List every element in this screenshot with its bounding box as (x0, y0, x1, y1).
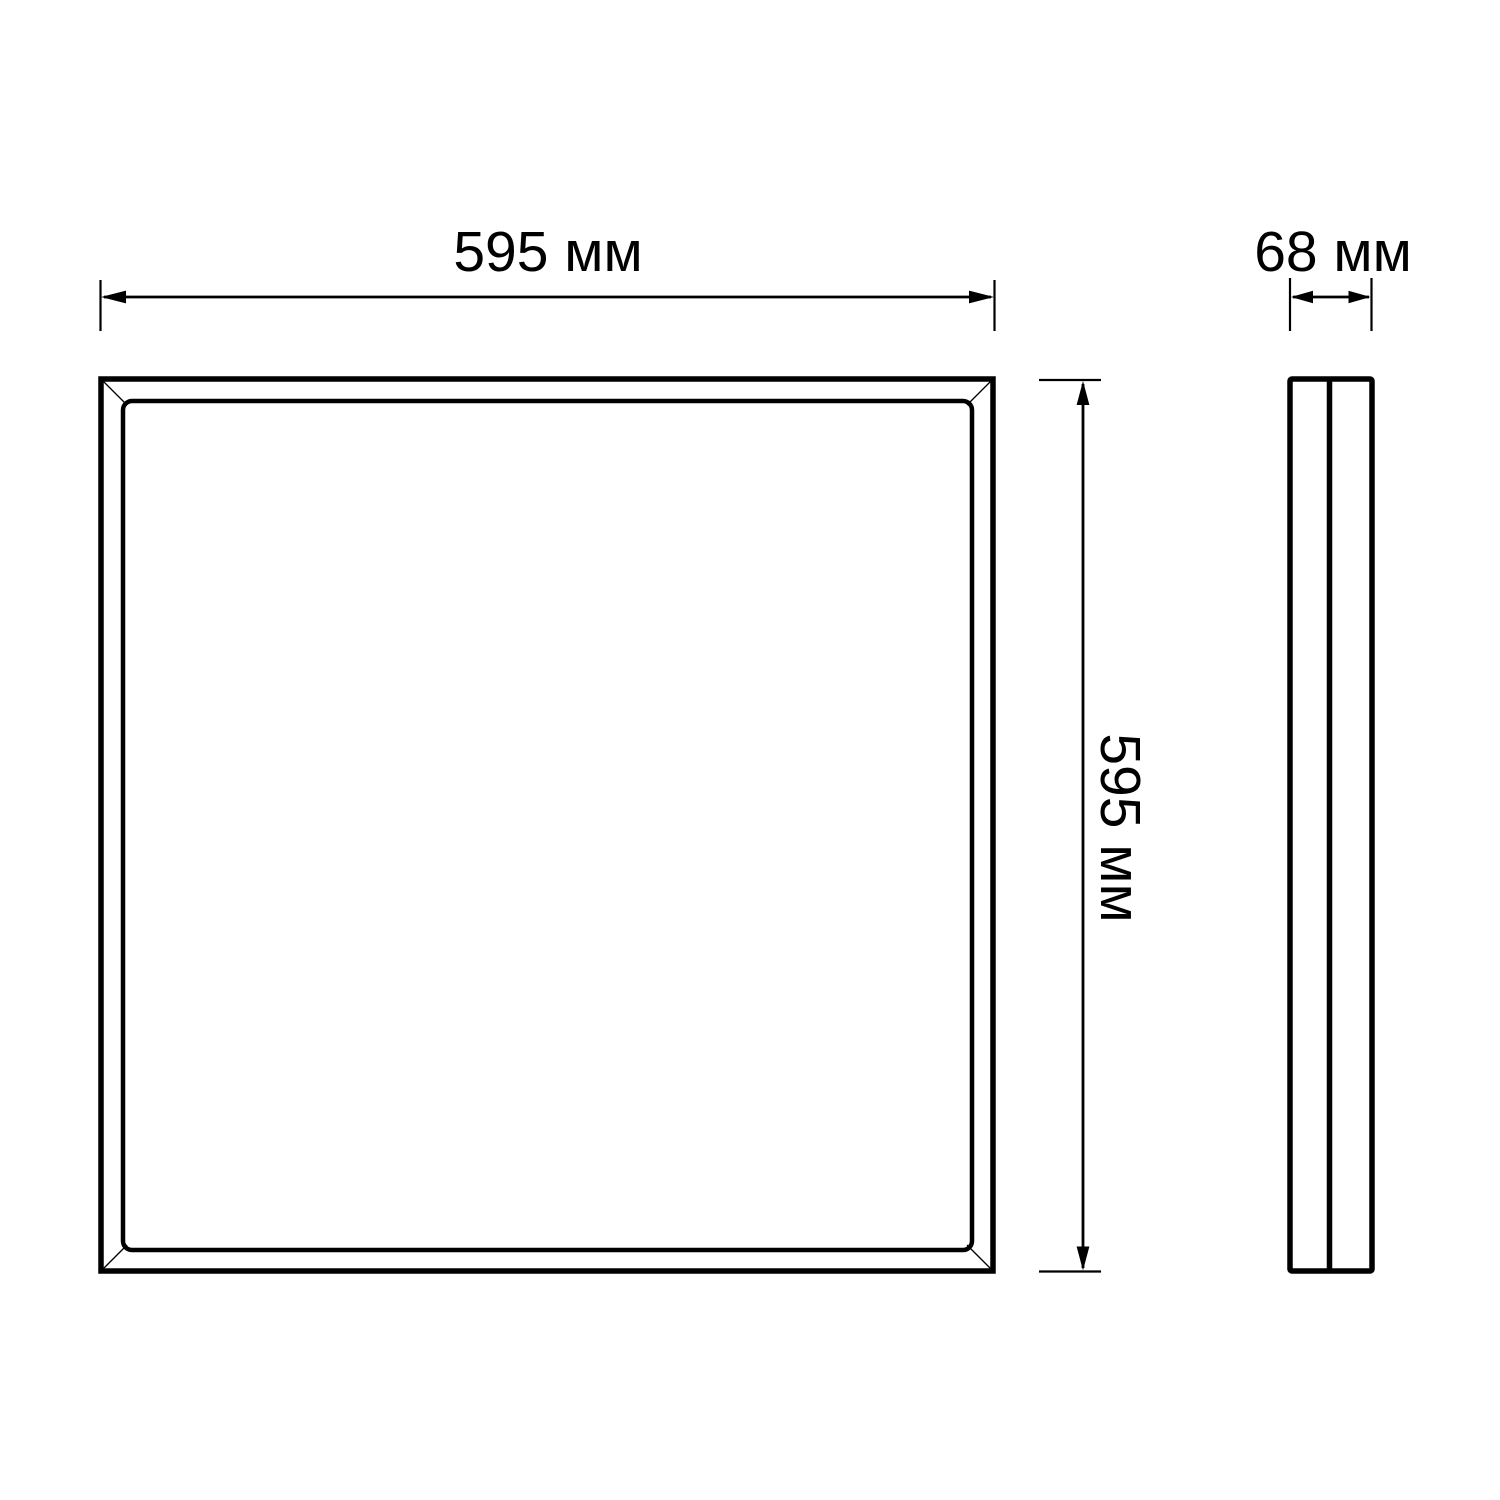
height-dim-label: 595 мм (1088, 733, 1152, 922)
depth-dimension: 68 мм (1254, 220, 1412, 331)
depth-dim-label: 68 мм (1254, 220, 1412, 284)
front-corner-bevel-bottom-left (103, 1245, 127, 1269)
dimension-drawing: 595 мм 595 мм 68 мм (0, 0, 1500, 1500)
front-corner-bevel-top-left (103, 381, 127, 405)
depth-dim-arrowhead-right-icon (1349, 291, 1371, 303)
width-dimension: 595 мм (101, 220, 995, 331)
front-corner-bevel-top-right (967, 381, 991, 405)
depth-dim-arrowhead-left-icon (1291, 291, 1313, 303)
front-view-inner-frame (123, 401, 972, 1250)
front-view (101, 379, 993, 1271)
height-dimension: 595 мм (1039, 380, 1152, 1272)
side-view (1290, 379, 1372, 1271)
width-dim-arrowhead-right-icon (969, 291, 994, 304)
height-dim-arrowhead-bottom-icon (1077, 1247, 1090, 1271)
width-dim-label: 595 мм (453, 220, 642, 284)
height-dim-arrowhead-top-icon (1077, 381, 1090, 405)
drawing-canvas: 595 мм 595 мм 68 мм (0, 0, 1500, 1500)
front-view-outer-frame (101, 379, 993, 1271)
front-corner-bevel-bottom-right (967, 1245, 991, 1269)
width-dim-arrowhead-left-icon (101, 291, 126, 304)
